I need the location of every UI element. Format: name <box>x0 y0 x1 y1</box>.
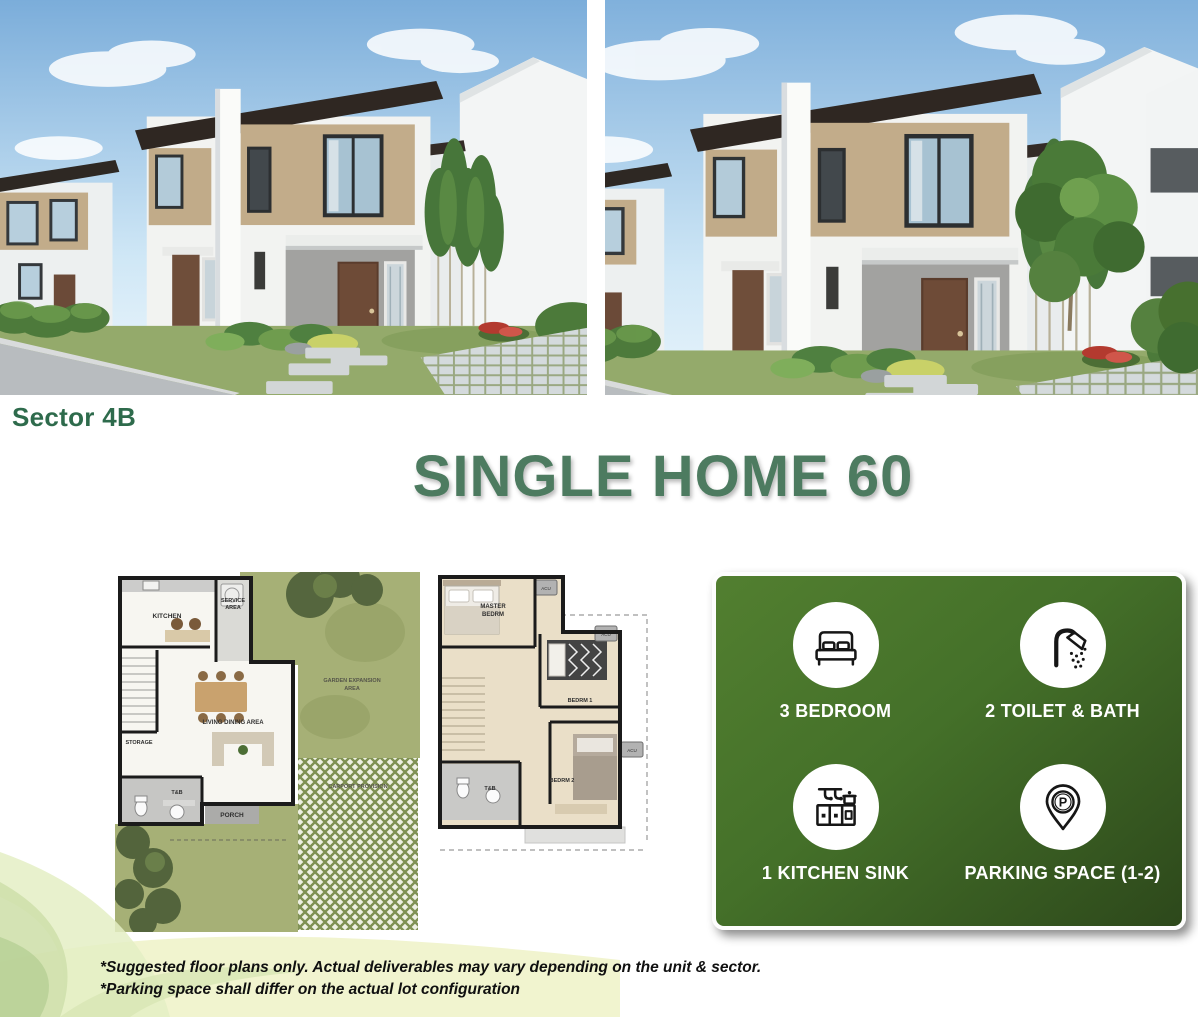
label-bedroom2: BEDRM 2 <box>550 778 575 784</box>
label-acu-1: ACU <box>541 586 551 591</box>
label-garden-2: AREA <box>344 686 360 692</box>
second-floor-plan: ACU ACU ACU MASTER BEDRM BEDRM 1 BEDRM 2… <box>435 572 660 872</box>
label-kitchen: KITCHEN <box>153 613 182 620</box>
label-garden-1: GARDEN EXPANSION <box>323 678 380 684</box>
feature-label-toilet-bath: 2 TOILET & BATH <box>985 701 1140 722</box>
feature-label-kitchen-sink: 1 KITCHEN SINK <box>762 863 909 884</box>
parking-pin-icon: P <box>1020 764 1106 850</box>
bed-icon <box>793 602 879 688</box>
shower-icon <box>1020 602 1106 688</box>
kitchen-sink-icon <box>793 764 879 850</box>
footnote-line-1: *Suggested floor plans only. Actual deli… <box>100 957 761 979</box>
label-service-1: SERVICE <box>221 598 245 604</box>
footnotes: *Suggested floor plans only. Actual deli… <box>100 957 761 1000</box>
label-living-dining: LIVING DINING AREA <box>202 720 264 726</box>
footnote-line-2: *Parking space shall differ on the actua… <box>100 979 761 1001</box>
feature-toilet-bath: 2 TOILET & BATH <box>949 592 1176 754</box>
label-bedroom1: BEDRM 1 <box>568 698 593 704</box>
label-toilet-bath-2f: T&B <box>484 786 495 792</box>
label-storage: STORAGE <box>125 740 152 746</box>
label-carport: CARPORT PROVISION <box>328 784 387 790</box>
feature-kitchen-sink: 1 KITCHEN SINK <box>722 754 949 916</box>
label-master-1: MASTER <box>480 604 506 610</box>
house-render-right <box>605 0 1198 395</box>
label-toilet-bath: T&B <box>171 790 182 796</box>
page-title: SINGLE HOME 60 <box>413 443 914 510</box>
label-master-2: BEDRM <box>482 612 504 618</box>
feature-bedroom: 3 BEDROOM <box>722 592 949 754</box>
svg-text:P: P <box>1058 796 1066 810</box>
label-acu-3: ACU <box>627 748 637 753</box>
sector-label: Sector 4B <box>12 402 136 433</box>
label-service-2: AREA <box>225 605 241 611</box>
label-porch: PORCH <box>220 812 244 819</box>
feature-label-parking: PARKING SPACE (1-2) <box>964 863 1160 884</box>
feature-parking: P PARKING SPACE (1-2) <box>949 754 1176 916</box>
features-panel: 3 BEDROOM 2 TOILET & BATH <box>712 572 1186 930</box>
feature-label-bedroom: 3 BEDROOM <box>780 701 892 722</box>
house-render-left <box>0 0 587 395</box>
